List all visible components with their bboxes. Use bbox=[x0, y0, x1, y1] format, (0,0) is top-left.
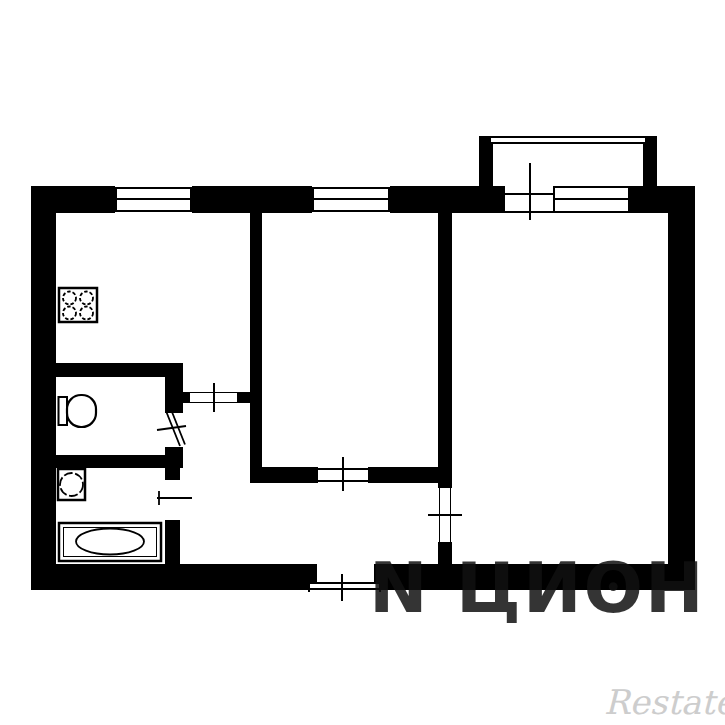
bathtub-icon bbox=[59, 523, 161, 561]
restate-watermark: Restate bbox=[604, 684, 725, 721]
floor-plan: N ЦИʘН Restate bbox=[0, 0, 725, 725]
stove-icon bbox=[59, 288, 97, 322]
sink-icon bbox=[58, 469, 85, 500]
toilet-door-leaf bbox=[157, 410, 186, 447]
toilet-icon bbox=[59, 395, 97, 427]
cian-watermark: N ЦИʘН bbox=[369, 553, 706, 623]
bathroom-door-leaf bbox=[157, 491, 192, 505]
